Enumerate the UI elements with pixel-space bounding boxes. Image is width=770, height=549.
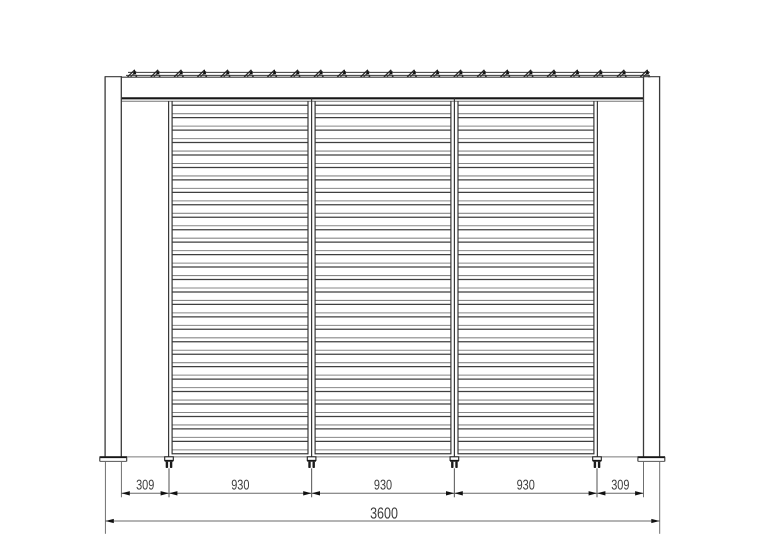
- svg-text:3600: 3600: [370, 506, 398, 523]
- svg-text:309: 309: [136, 477, 154, 493]
- svg-text:930: 930: [517, 477, 535, 493]
- svg-text:930: 930: [231, 477, 249, 493]
- svg-text:930: 930: [374, 477, 392, 493]
- svg-text:309: 309: [611, 477, 629, 493]
